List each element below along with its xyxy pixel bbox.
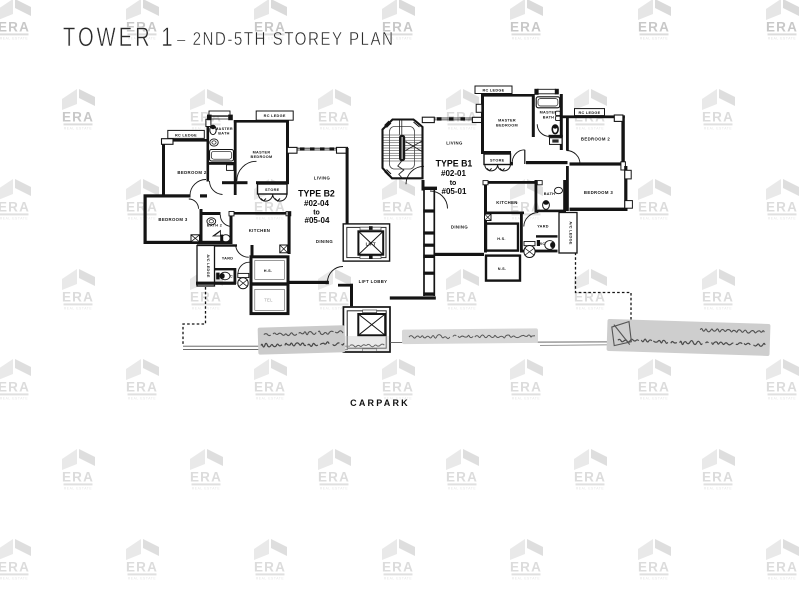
svg-text:KITCHEN: KITCHEN: [496, 200, 518, 205]
svg-text:N.S.: N.S.: [498, 267, 507, 271]
svg-text:KITCHEN: KITCHEN: [249, 228, 271, 233]
svg-text:BEDROOM: BEDROOM: [496, 123, 518, 127]
svg-text:MASTER: MASTER: [498, 119, 516, 123]
svg-text:BEDROOM 3: BEDROOM 3: [584, 190, 613, 195]
svg-text:BEDROOM 2: BEDROOM 2: [177, 170, 206, 175]
svg-text:#05-04: #05-04: [305, 216, 330, 225]
svg-text:MASTER: MASTER: [540, 111, 558, 115]
svg-text:DINING: DINING: [451, 225, 468, 230]
svg-text:MASTER: MASTER: [253, 150, 271, 154]
svg-text:to: to: [450, 180, 457, 187]
svg-text:YARD: YARD: [537, 224, 549, 228]
svg-text:RC LEDGE: RC LEDGE: [482, 89, 504, 93]
svg-text:STORE: STORE: [490, 158, 505, 162]
svg-text:#02-04: #02-04: [304, 199, 329, 208]
svg-text:#02-01: #02-01: [441, 169, 466, 178]
svg-text:BATH: BATH: [218, 132, 229, 136]
svg-text:RC LEDGE: RC LEDGE: [264, 114, 286, 118]
svg-text:BEDROOM 2: BEDROOM 2: [581, 136, 610, 141]
svg-text:CARPARK: CARPARK: [350, 398, 410, 408]
svg-text:#05-01: #05-01: [442, 187, 467, 196]
svg-text:TYPE B2: TYPE B2: [298, 188, 335, 198]
svg-text:BATH: BATH: [543, 115, 554, 119]
svg-text:YARD: YARD: [222, 256, 234, 260]
svg-text:LIVING: LIVING: [314, 175, 331, 180]
svg-text:RC LEDGE: RC LEDGE: [578, 111, 600, 115]
svg-text:BATH: BATH: [544, 192, 555, 196]
svg-text:STORE: STORE: [265, 188, 280, 192]
svg-text:H.S.: H.S.: [264, 269, 273, 273]
svg-text:DINING: DINING: [316, 239, 333, 244]
svg-text:BEDROOM: BEDROOM: [251, 155, 273, 159]
svg-text:A/C LEDGE: A/C LEDGE: [206, 254, 210, 278]
svg-text:TOWER 1: TOWER 1: [63, 22, 176, 51]
svg-text:– 2ND-5TH STOREY PLAN: – 2ND-5TH STOREY PLAN: [177, 29, 394, 50]
svg-text:MASTER: MASTER: [215, 127, 233, 131]
svg-text:LIVING: LIVING: [446, 140, 463, 145]
svg-text:BEDROOM 3: BEDROOM 3: [158, 217, 187, 222]
svg-text:H.S.: H.S.: [497, 237, 506, 241]
svg-text:LIFT LOBBY: LIFT LOBBY: [359, 279, 388, 284]
svg-text:RC LEDGE: RC LEDGE: [175, 134, 197, 138]
svg-text:A/C LEDGE: A/C LEDGE: [569, 221, 573, 245]
svg-text:LIFT: LIFT: [366, 241, 376, 246]
svg-text:TYPE B1: TYPE B1: [436, 159, 473, 169]
svg-text:TEL: TEL: [264, 297, 273, 302]
